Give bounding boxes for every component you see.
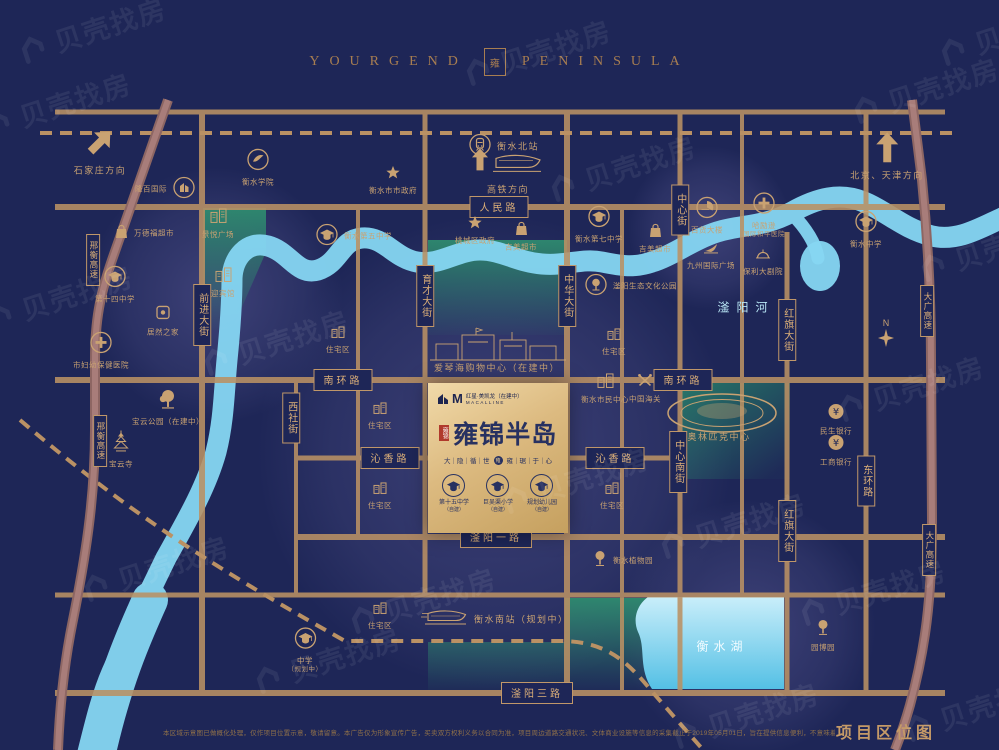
jimei-supermarket-1: 吉美超市 [505,221,537,252]
no5-middle-school-label: 衡水第五中学 [344,232,392,242]
star-icon [468,216,482,234]
building-sm-icon [373,481,387,499]
china-customs: 中国海关 [629,373,661,404]
crossed-icon [637,373,653,392]
lake-label: 衡水湖 [696,638,747,655]
yingbin-hotel-label: 迎宾馆 [211,289,235,299]
residential-2-label: 住宅区 [602,347,626,357]
maternal-health-hospital-label: 市妇幼保健医院 [73,360,129,370]
jingyue-plaza: 景悦广场 [202,208,234,240]
fuyang-3rd-road: 滏阳三路 [501,682,573,704]
zhongxin-south-street: 中心南街 [669,431,687,493]
qianjin-street: 前进大街 [193,284,211,346]
slogan-right: 雍｜琚｜于｜心 [507,455,553,465]
juran-home-label: 居然之家 [147,327,179,337]
residential-2: 住宅区 [602,327,626,357]
hengshui-botanical-garden: 衡水植物园 [593,550,653,572]
nanhuan-road-east: 南环路 [654,369,713,391]
jiuzhou-plaza: 九州国际广场 [687,241,735,271]
dome-icon [755,247,771,265]
circle-bird-icon [247,148,269,175]
no7-middle-school-label: 衡水第七中学 [575,234,623,244]
sail-icon [703,241,719,259]
bag-icon [649,223,662,242]
city-government-label: 衡水市市政府 [369,186,417,196]
no7-middle-school: 衡水第七中学 [575,205,623,244]
juran-home: 居然之家 [147,304,179,337]
residential-4-label: 住宅区 [368,501,392,511]
star-icon [386,166,400,184]
yen-circle-icon: ¥ [828,434,844,455]
hsr-direction-label: 高铁方向 [487,183,529,195]
jimei-supermarket-2-label: 吉美超市 [639,244,671,254]
zhongxin-street: 中心街 [671,185,689,236]
jingyue-plaza-label: 景悦广场 [202,230,234,240]
cross-circle-icon [90,331,112,358]
jiuzhou-plaza-label: 九州国际广场 [687,261,735,271]
grad-circle-icon [855,210,877,237]
slogan-left: 大｜隐｜循｜世 [444,455,490,465]
building-icon [597,373,614,393]
xingheng-expressway-south: 邢衡高速 [93,415,107,467]
beijing-tianjin-direction-label: 北京、天津方向 [850,169,924,181]
donghuan-road: 东环路 [857,456,875,507]
no5-middle-school: 衡水第五中学 [316,224,392,251]
maternal-health-hospital: 市妇幼保健医院 [73,331,129,370]
svg-text:¥: ¥ [833,438,839,449]
yucai-street: 育才大街 [416,265,434,327]
project-name: 雍锦半岛 [453,415,557,451]
project-slogan: 大｜隐｜循｜世 雍 雍｜琚｜于｜心 [428,455,568,465]
building-icon [210,208,227,228]
daguang-expressway-north: 大广高速 [920,285,934,337]
pie-circle-icon [696,196,718,223]
brand-left: YOURGEND [309,54,468,70]
jimei-supermarket-2: 吉美超市 [639,223,671,254]
cross-circle-icon [753,192,775,219]
grad-circle-icon [588,205,610,232]
poly-theatre-label: 保利大剧院 [743,267,783,277]
pagoda-icon [112,430,130,457]
city-government: 衡水市市政府 [369,166,417,196]
shijiazhuang-direction-label: 石家庄方向 [74,164,127,176]
building-icon [215,267,232,287]
project-seal: 雍锦 [439,425,450,441]
peace-hospital-label: 哈励逊国际和平医院 [743,221,785,240]
hengshui-college-label: 衡水学院 [242,177,274,187]
square-logo-icon [155,304,171,325]
developer-name: 红星·美凯龙（在建中） [466,392,523,400]
hengshui-middle-school-label: 衡水中学 [850,239,882,249]
hengshui-middle-school: 衡水中学 [850,210,882,249]
longbai-international-label: 隆百国际 [135,185,167,195]
tree-big-icon [158,389,178,415]
grad-circle-icon [316,224,338,251]
shijiazhuang-direction: 石家庄方向 [74,127,127,176]
beike-logo-icon [0,298,19,336]
civic-center: 衡水市民中心 [581,373,629,405]
compass-n-label: N [883,318,890,328]
hsr-direction: 高铁方向 [471,148,545,195]
hsr-art-icon [471,148,545,181]
residential-1-label: 住宅区 [326,345,350,355]
river-label: 滏阳河 [717,299,774,316]
baoyun-park: 宝云公园（在建中） [132,389,204,427]
project-school-1: 第十五中学（自建） [439,474,469,514]
map-canvas [0,0,999,750]
project-title-row: 雍锦 雍锦半岛 [428,415,568,451]
baoyun-temple: 宝云寺 [109,430,133,469]
wandefu-supermarket-label: 万德福超市 [134,229,174,239]
department-store-label: 百货大楼 [691,225,723,235]
compass: N [878,318,894,347]
river-pond [800,241,840,291]
poly-theatre: 保利大剧院 [743,247,783,277]
nanhuan-road-west: 南环路 [314,369,373,391]
baoyun-park-label: 宝云公园（在建中） [132,417,204,427]
bag-icon [515,221,528,240]
residential-4: 住宅区 [368,481,392,511]
icbc-bank-label: 工商银行 [820,457,852,467]
building-sm-icon [607,327,621,345]
hengshui-college: 衡水学院 [242,148,274,187]
location-map-page: YOURGEND 雍 PENINSULA 滏阳河 衡水湖 N M 红星·美凯龙（… [0,0,999,750]
macalline-building-icon [438,393,449,404]
qinxiang-road-west: 沁香路 [361,447,420,469]
residential-3: 住宅区 [368,401,392,431]
olympic-center-label: 奥林匹克中心 [687,431,750,443]
hengshui-south-station-label: 衡水南站（规划中） [474,614,569,626]
arrow-up-icon [874,132,900,167]
developer-subtitle: MACALLINE [466,400,523,405]
project-school-label: 第十五中学（自建） [439,499,469,514]
compass-star-icon [878,329,894,347]
aegean-mall: 爱琴海购物中心（在建中） [434,362,560,374]
slogan-seal-icon: 雍 [494,456,503,465]
department-store: 百货大楼 [691,196,723,235]
yingbin-hotel: 迎宾馆 [211,267,235,299]
residential-3-label: 住宅区 [368,421,392,431]
residential-5-label: 住宅区 [600,501,624,511]
hongqi-street-north: 红旗大街 [778,299,796,361]
bag-icon [115,225,128,244]
china-customs-label: 中国海关 [629,394,661,404]
wandefu-supermarket: 万德福超市 [115,225,174,244]
building-sm-icon [373,401,387,419]
beijing-tianjin-direction: 北京、天津方向 [850,132,924,181]
zhonghua-street: 中华大街 [558,265,576,327]
olympic-center: 奥林匹克中心 [687,431,750,443]
fuyang-eco-park-label: 滏阳生态文化公园 [613,282,677,292]
arrow-ne-icon [85,127,115,162]
beike-logo-icon [0,105,17,143]
icbc-bank: ¥工商银行 [820,434,852,467]
renmin-road: 人民路 [470,196,529,218]
peace-hospital: 哈励逊国际和平医院 [743,192,785,240]
taocheng-government: 桃城区政府 [455,216,495,246]
longbai-international: 隆百国际 [135,177,195,204]
xishe-street: 西社街 [282,393,300,444]
project-block: M 红星·美凯龙（在建中） MACALLINE 雍锦 雍锦半岛 大｜隐｜循｜世 … [428,383,568,533]
civic-center-label: 衡水市民中心 [581,395,629,405]
jimei-supermarket-1-label: 吉美超市 [505,242,537,252]
grad-cap-icon [442,474,465,497]
hengshui-botanical-garden-label: 衡水植物园 [613,556,653,566]
developer-logo: M [452,392,463,405]
circle-building-icon [173,177,195,204]
taocheng-government-label: 桃城区政府 [455,236,495,246]
baoyun-temple-label: 宝云寺 [109,459,133,469]
fuyang-eco-park: 滏阳生态文化公园 [585,274,677,301]
developer-row: M 红星·美凯龙（在建中） MACALLINE [428,383,568,405]
tree-icon [593,550,607,572]
yuanbo-garden-label: 园博园 [811,643,835,653]
aegean-mall-label: 爱琴海购物中心（在建中） [434,362,560,374]
tree-circle-icon [585,274,607,301]
